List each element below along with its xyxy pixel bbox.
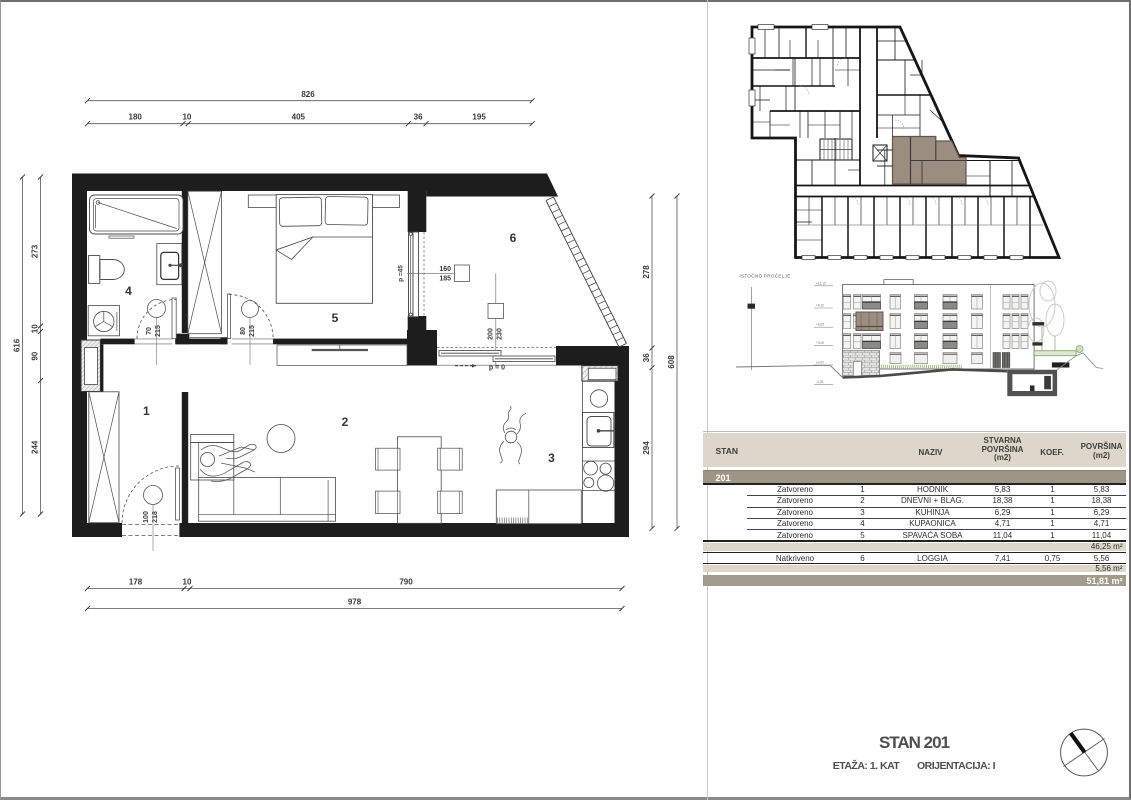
- svg-text:10: 10: [183, 578, 192, 587]
- svg-text:215: 215: [155, 325, 162, 337]
- svg-text:273: 273: [31, 244, 40, 258]
- svg-text:5: 5: [332, 311, 339, 325]
- svg-text:278: 278: [642, 265, 651, 279]
- svg-text:4: 4: [125, 284, 132, 298]
- svg-text:180: 180: [129, 113, 143, 122]
- svg-text:405: 405: [292, 113, 306, 122]
- svg-text:1: 1: [143, 404, 150, 418]
- svg-text:200: 200: [488, 328, 495, 340]
- svg-text:-3,05: -3,05: [816, 380, 823, 384]
- svg-text:790: 790: [399, 578, 413, 587]
- svg-text:185: 185: [439, 276, 451, 283]
- svg-text:+3,00: +3,00: [816, 341, 824, 345]
- svg-text:2: 2: [342, 415, 349, 429]
- svg-text:p =45: p =45: [398, 265, 405, 282]
- svg-text:p = 0: p = 0: [489, 365, 505, 372]
- svg-text:ISTOČNO PROČELJE: ISTOČNO PROČELJE: [739, 273, 790, 279]
- svg-text:+9,10: +9,10: [816, 304, 824, 308]
- svg-text:10: 10: [182, 113, 191, 122]
- svg-text:36: 36: [642, 353, 651, 362]
- svg-text:+12,15: +12,15: [816, 281, 826, 285]
- svg-text:616: 616: [13, 338, 22, 352]
- svg-text:244: 244: [31, 440, 40, 454]
- svg-text:70: 70: [146, 327, 153, 335]
- svg-text:3: 3: [548, 451, 555, 465]
- svg-text:608: 608: [667, 355, 676, 369]
- svg-text:230: 230: [497, 328, 504, 340]
- svg-text:80: 80: [240, 327, 247, 335]
- svg-text:10: 10: [31, 324, 40, 333]
- svg-text:±0,00: ±0,00: [816, 361, 824, 365]
- svg-text:36: 36: [414, 113, 423, 122]
- svg-text:+6,05: +6,05: [816, 323, 824, 327]
- svg-text:160: 160: [439, 266, 451, 273]
- svg-text:195: 195: [472, 113, 486, 122]
- svg-text:90: 90: [31, 351, 40, 360]
- svg-text:978: 978: [348, 598, 362, 607]
- svg-text:178: 178: [129, 578, 143, 587]
- svg-text:6: 6: [510, 231, 517, 245]
- svg-text:294: 294: [642, 441, 651, 455]
- svg-text:826: 826: [301, 90, 315, 99]
- svg-text:100: 100: [143, 511, 150, 523]
